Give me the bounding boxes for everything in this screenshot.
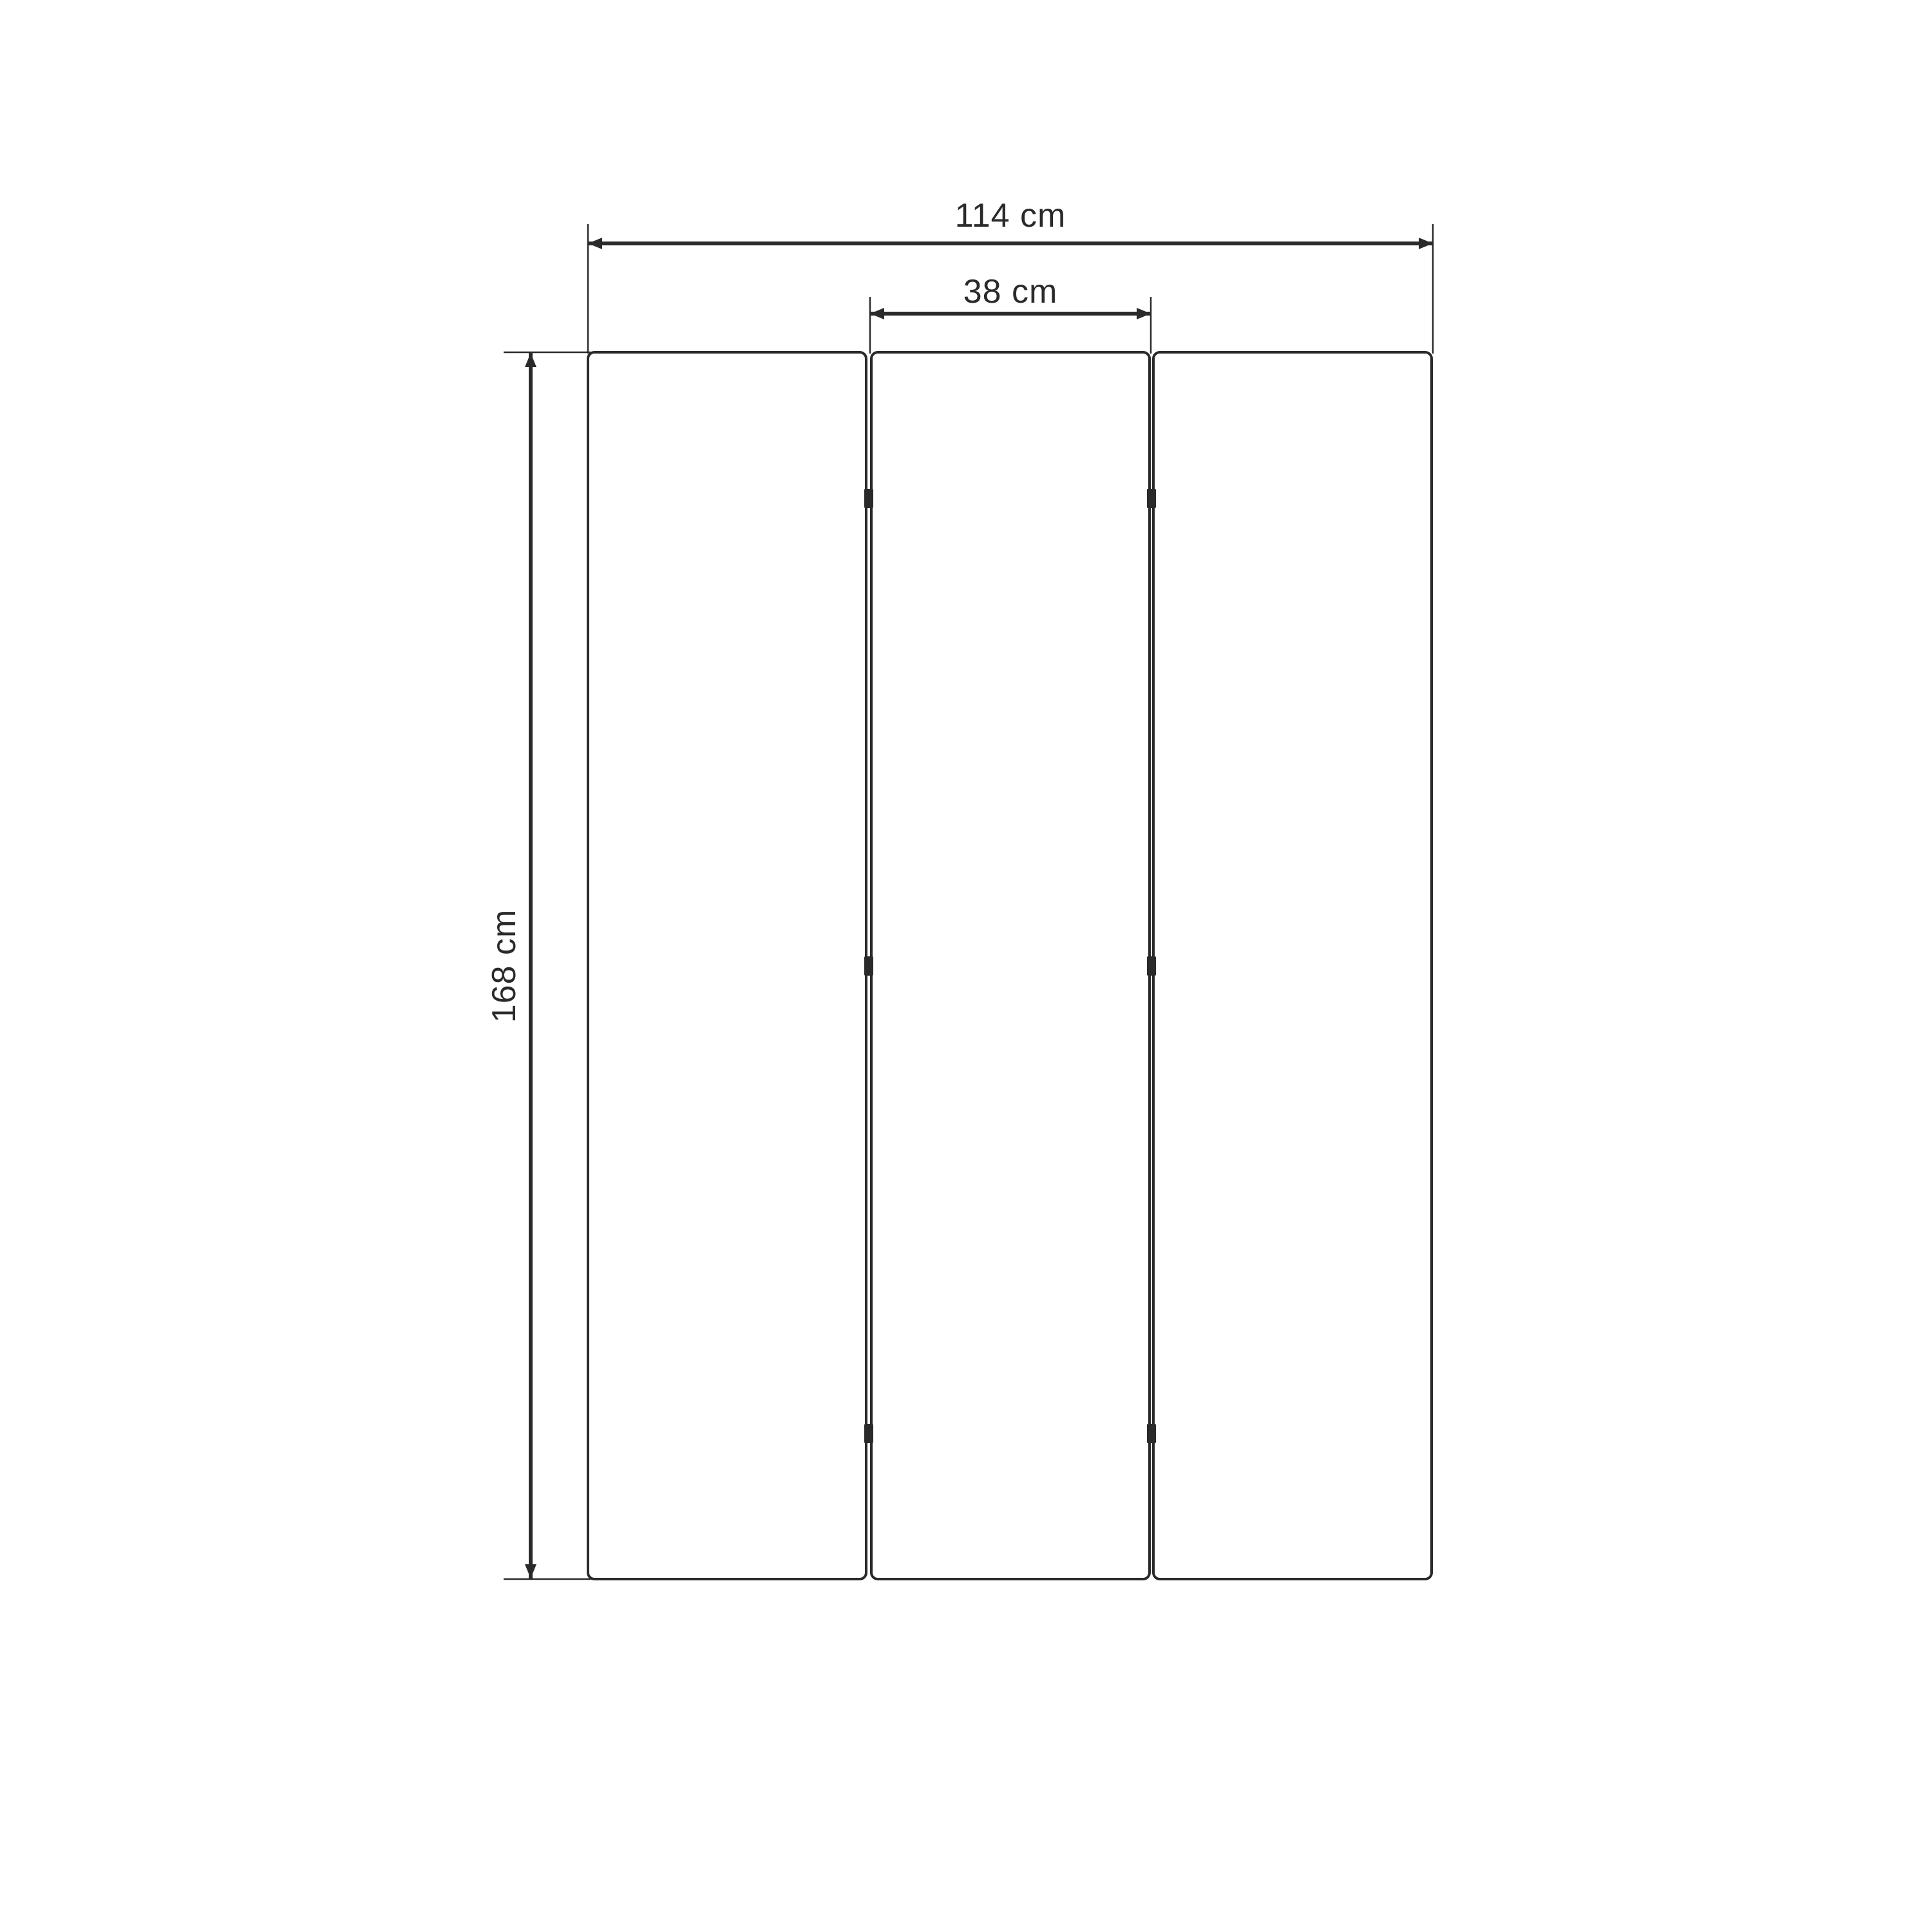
panel-left bbox=[588, 352, 866, 1579]
arrow-right-icon bbox=[1419, 238, 1433, 249]
arrow-right-icon bbox=[1137, 308, 1151, 319]
dimension-panel-width: 38 cm bbox=[870, 273, 1151, 354]
hinge-mark bbox=[1147, 956, 1156, 976]
hinge-mark bbox=[864, 489, 873, 508]
dimension-height: 168 cm bbox=[486, 352, 591, 1579]
dimension-drawing-canvas: 114 cm 38 cm 168 cm bbox=[0, 0, 1932, 1932]
panel-middle bbox=[871, 352, 1150, 1579]
hinge-mark bbox=[1147, 489, 1156, 508]
hinge-mark bbox=[864, 956, 873, 976]
arrow-up-icon bbox=[525, 353, 536, 367]
panel-width-label: 38 cm bbox=[963, 273, 1058, 310]
arrow-left-icon bbox=[870, 308, 884, 319]
hinge-mark bbox=[864, 1424, 873, 1443]
arrow-down-icon bbox=[525, 1564, 536, 1578]
three-panel-screen-diagram: 114 cm 38 cm 168 cm bbox=[0, 0, 1932, 1932]
total-width-label: 114 cm bbox=[955, 197, 1066, 234]
panels bbox=[588, 352, 1432, 1579]
height-label: 168 cm bbox=[486, 909, 523, 1023]
panel-right bbox=[1153, 352, 1432, 1579]
arrow-left-icon bbox=[588, 238, 602, 249]
hinge-mark bbox=[1147, 1424, 1156, 1443]
